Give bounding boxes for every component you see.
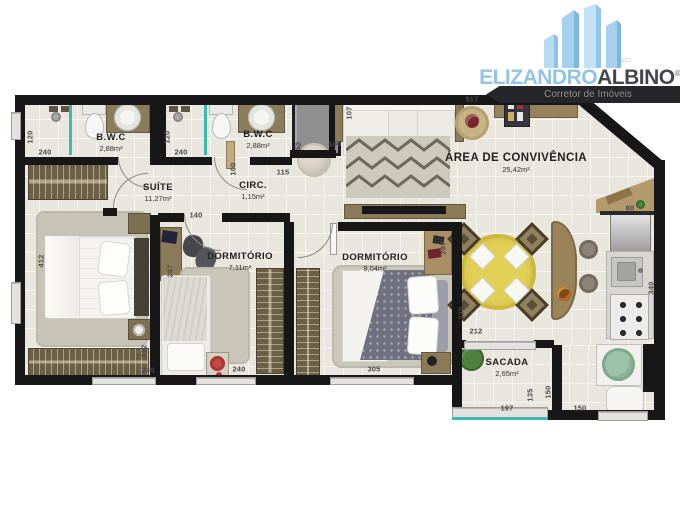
burner-grid: [613, 297, 644, 337]
refrigerator: [610, 214, 651, 253]
wall: [338, 222, 462, 231]
wardrobe: [28, 163, 108, 200]
window: [92, 377, 156, 385]
dim-label: 312: [140, 344, 149, 357]
red-stool: [210, 356, 225, 371]
dim-label: 297: [166, 264, 175, 277]
lamp-icon: [133, 324, 145, 336]
round-sink-icon: [114, 104, 141, 131]
dim-label: 240: [174, 148, 187, 157]
bar-stool: [579, 240, 598, 259]
wall: [284, 222, 294, 375]
window: [330, 377, 414, 385]
wall: [654, 160, 665, 420]
headboard: [134, 238, 149, 316]
fruit-bowl-decor: [557, 287, 571, 301]
floor-plan-image: B.W.C2,88m² B.W.C2,88m² SUÍTE11,27m² CIR…: [0, 0, 680, 510]
wardrobe: [296, 268, 320, 378]
duvet-fold: [45, 236, 80, 317]
pillow: [407, 316, 440, 356]
shower-glass: [69, 105, 72, 155]
wall: [250, 157, 292, 165]
plant-decor: [636, 200, 645, 209]
window: [11, 112, 21, 140]
toilet-bowl: [212, 113, 231, 139]
chevron-rug: [346, 136, 450, 198]
pillow: [167, 343, 205, 371]
dim-label: 240: [38, 148, 51, 157]
tv-icon: [362, 206, 446, 214]
pillow: [407, 275, 440, 315]
wardrobe: [256, 268, 284, 374]
shower-head-icon: [51, 112, 61, 122]
wall: [150, 215, 160, 375]
monitor-icon: [161, 230, 178, 244]
dim-label: 412: [37, 254, 46, 267]
room-label-dorm2: DORMITÓRIO9,04m²: [342, 252, 408, 273]
bar-stool: [579, 274, 598, 293]
sink-basin: [617, 262, 636, 281]
window: [598, 411, 648, 421]
window: [11, 282, 21, 324]
dim-label: 115: [277, 168, 290, 177]
dim-label: 212: [469, 327, 482, 336]
registered-mark: ®: [675, 69, 680, 78]
window: [196, 377, 256, 385]
dim-label: 305: [367, 365, 380, 374]
balcony-glass-rail: [452, 417, 548, 420]
sliding-door: [464, 341, 536, 350]
pillow: [98, 280, 131, 316]
duvet: [163, 277, 207, 341]
dim-label: 340: [647, 281, 656, 294]
building-towers-icon: [538, 4, 638, 70]
pillow: [97, 240, 131, 277]
wall: [15, 157, 118, 165]
wall: [643, 344, 655, 392]
shower-glass: [204, 105, 207, 155]
dim-label: 150: [544, 385, 553, 398]
room-label-bwc2: B.W.C2,88m²: [243, 129, 272, 150]
flower-decor: [465, 114, 479, 128]
nightstand: [128, 213, 151, 234]
bottle-decor: [517, 112, 523, 121]
wall: [534, 340, 554, 348]
dim-label: 52: [294, 142, 303, 151]
dim-label: 297: [439, 241, 448, 254]
dim-label: 80: [626, 204, 635, 213]
dim-label: 120: [26, 130, 35, 143]
room-label-circ: CIRC.1,15m²: [239, 180, 267, 201]
dim-label: 135: [526, 388, 535, 401]
wall: [103, 208, 117, 216]
shower-head-icon: [173, 112, 183, 122]
dim-label: 225: [457, 306, 466, 319]
dim-label: 150: [573, 404, 586, 413]
round-sink-icon: [248, 104, 275, 131]
dim-label: 100: [328, 140, 341, 149]
dim-label: 197: [500, 404, 513, 413]
dim-label: 240: [232, 365, 245, 374]
tagline-ribbon: Corretor de Imóveis: [486, 86, 680, 103]
faucet-icon: [638, 268, 643, 273]
wall: [158, 213, 184, 222]
room-label-dorm1: DORMITÓRIO7,11m²: [207, 251, 273, 272]
dim-label: 120: [163, 130, 172, 143]
dim-label: 100: [229, 162, 238, 175]
room-label-living: ÁREA DE CONVIVÊNCIA25,42m²: [445, 152, 587, 174]
room-label-sacada: SACADA2,65m²: [485, 357, 528, 378]
wardrobe: [28, 348, 149, 376]
room-label-suite: SUÍTE11,27m²: [143, 182, 173, 203]
dim-label: 140: [189, 211, 202, 220]
wall: [222, 213, 290, 222]
bottle-decor: [508, 112, 514, 121]
lamp-icon: [427, 356, 437, 366]
dim-label: 517: [465, 95, 478, 104]
shelf-icon: [181, 106, 190, 112]
room-label-bwc1: B.W.C2,88m²: [96, 132, 125, 153]
wall: [166, 157, 212, 165]
wall: [552, 345, 562, 415]
dim-label: 107: [345, 106, 354, 119]
dim-label: 240: [141, 366, 154, 375]
laundry-tank: [602, 348, 635, 381]
